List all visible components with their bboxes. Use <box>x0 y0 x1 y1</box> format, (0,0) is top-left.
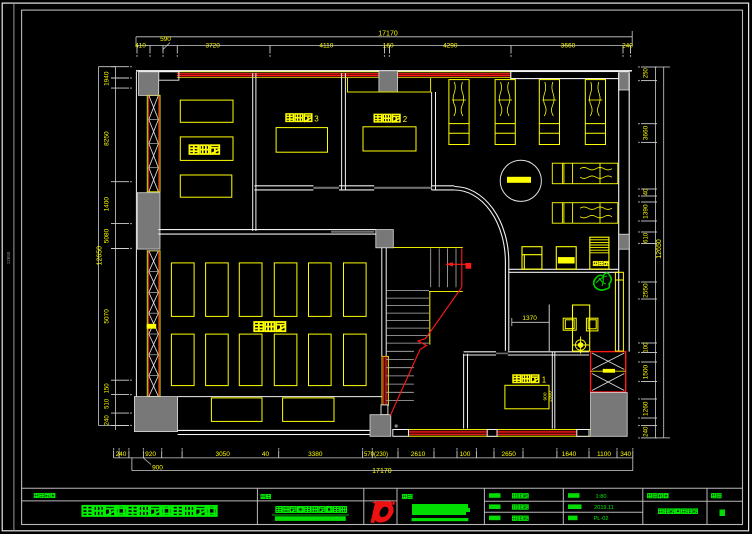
svg-text:8250: 8250 <box>104 131 111 146</box>
svg-text:40: 40 <box>262 451 270 458</box>
svg-text:1260: 1260 <box>643 401 650 416</box>
svg-text:1400: 1400 <box>104 197 111 212</box>
svg-text:590: 590 <box>160 36 171 43</box>
svg-text:1: 1 <box>542 376 547 385</box>
svg-text:3380: 3380 <box>308 451 323 458</box>
svg-text:PL-02: PL-02 <box>594 516 609 522</box>
svg-text:1500: 1500 <box>643 364 650 379</box>
svg-text:3660: 3660 <box>643 125 650 140</box>
svg-text:12650: 12650 <box>6 251 11 264</box>
svg-text:2650: 2650 <box>501 451 516 458</box>
svg-text:1390: 1390 <box>643 204 650 219</box>
svg-text:240: 240 <box>644 426 650 437</box>
svg-text:3: 3 <box>314 114 319 123</box>
svg-text:1100: 1100 <box>597 451 611 458</box>
svg-text:17170: 17170 <box>378 30 398 37</box>
svg-text:150: 150 <box>105 383 111 394</box>
svg-text:2000: 2000 <box>548 391 554 402</box>
svg-text:1370: 1370 <box>522 315 537 322</box>
svg-text:2550: 2550 <box>643 283 650 298</box>
svg-text:610: 610 <box>644 232 650 243</box>
svg-text:1940: 1940 <box>104 71 111 86</box>
svg-text:100: 100 <box>644 342 650 353</box>
svg-text:920: 920 <box>145 451 156 458</box>
svg-text:1640: 1640 <box>562 451 577 458</box>
svg-text:240: 240 <box>116 451 127 458</box>
svg-text:5070: 5070 <box>104 309 111 324</box>
svg-text:1:80: 1:80 <box>596 494 607 500</box>
svg-text:3050: 3050 <box>215 451 230 458</box>
svg-text:4110: 4110 <box>319 42 333 49</box>
svg-text:2: 2 <box>403 115 408 124</box>
svg-text:12650: 12650 <box>656 239 663 259</box>
svg-text:3720: 3720 <box>205 42 220 49</box>
svg-text:4290: 4290 <box>443 42 458 49</box>
svg-text:3660: 3660 <box>561 42 576 49</box>
svg-text:100: 100 <box>460 451 471 458</box>
svg-text:17170: 17170 <box>372 468 392 475</box>
svg-text:340: 340 <box>620 451 631 458</box>
svg-text:510: 510 <box>105 398 111 409</box>
svg-text:570(230): 570(230) <box>364 452 388 458</box>
svg-text:250: 250 <box>644 67 650 78</box>
svg-text:240: 240 <box>105 415 111 426</box>
svg-text:2610: 2610 <box>411 451 426 458</box>
svg-text:410: 410 <box>135 42 146 49</box>
svg-text:160: 160 <box>383 42 394 49</box>
svg-text:12650: 12650 <box>97 246 104 266</box>
svg-text:40: 40 <box>644 188 650 195</box>
svg-text:2019.11: 2019.11 <box>594 505 614 511</box>
svg-text:5080: 5080 <box>104 228 111 243</box>
svg-text:240: 240 <box>622 42 633 49</box>
